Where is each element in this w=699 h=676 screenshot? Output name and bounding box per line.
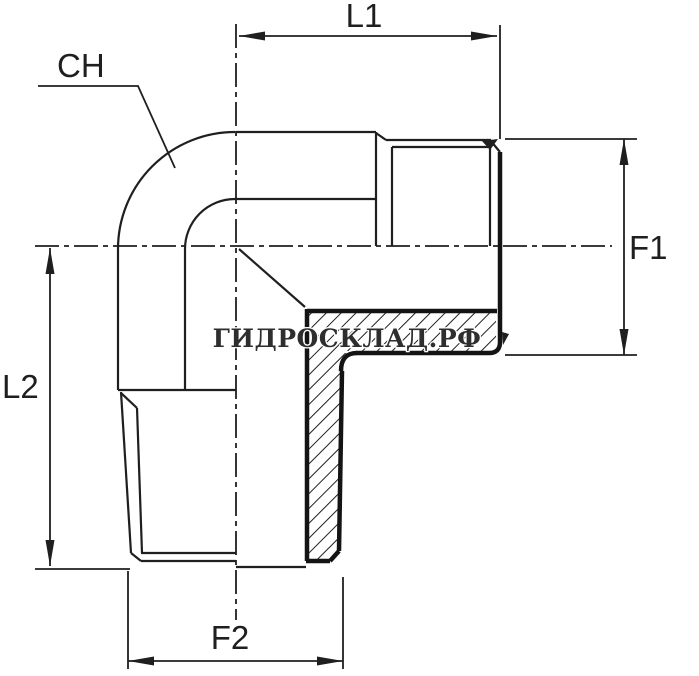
ch-label: CH bbox=[57, 47, 105, 84]
dimension-f1: F1 bbox=[505, 139, 668, 355]
bore-junction-diagonal bbox=[239, 249, 305, 307]
drawing-canvas: L1 F1 L2 F2 CH ГИДРОСКЛАД.РФ bbox=[0, 0, 699, 676]
f2-label: F2 bbox=[211, 619, 250, 656]
outer-bend-arc bbox=[118, 132, 235, 249]
l2-label: L2 bbox=[2, 368, 39, 405]
f1-arrow-bottom bbox=[620, 329, 629, 355]
f1-arrow-top bbox=[620, 139, 629, 165]
ch-leader-line bbox=[38, 86, 175, 168]
bottom-thread-runin-chamfer bbox=[121, 393, 137, 408]
dimension-l2: L2 bbox=[2, 248, 130, 569]
l2-arrow-top bbox=[46, 248, 55, 274]
l1-arrow-left bbox=[239, 32, 265, 41]
thread-tip-mark-bottom bbox=[502, 332, 509, 345]
inner-bend-arc bbox=[185, 199, 235, 249]
dimension-ch: CH bbox=[38, 47, 175, 168]
bottom-thread-crest-taper bbox=[121, 392, 131, 553]
l1-label: L1 bbox=[346, 0, 383, 34]
dimension-l1: L1 bbox=[239, 0, 500, 139]
l1-arrow-right bbox=[471, 32, 497, 41]
elbow-fitting-drawing: L1 F1 L2 F2 CH ГИДРОСКЛАД.РФ bbox=[0, 0, 699, 676]
column-outer-wall bbox=[339, 371, 342, 551]
bottom-tip-chamfer bbox=[131, 553, 141, 561]
hatch-vertical-wall bbox=[308, 351, 341, 559]
watermark-text: ГИДРОСКЛАД.РФ bbox=[213, 324, 482, 353]
thread-start-chamfer bbox=[376, 133, 386, 140]
bottom-thread-root-taper bbox=[137, 408, 142, 553]
l2-arrow-bottom bbox=[46, 540, 55, 566]
f2-arrow-right bbox=[317, 657, 343, 666]
f2-arrow-left bbox=[128, 657, 154, 666]
f1-label: F1 bbox=[629, 229, 668, 266]
